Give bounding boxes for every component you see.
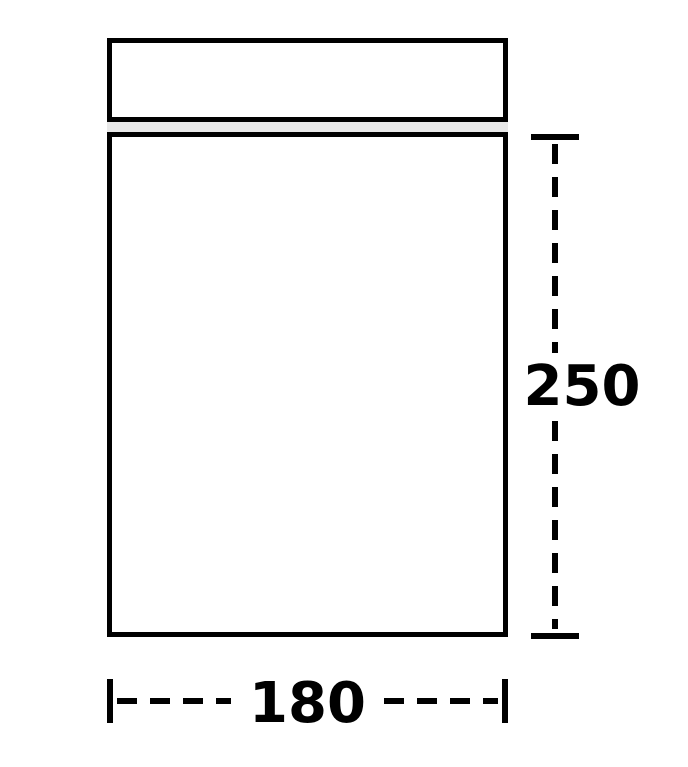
dimension-cap-top xyxy=(531,134,579,140)
dashed-line-upper xyxy=(552,144,558,353)
height-dimension: 250 xyxy=(531,134,579,639)
height-value-label: 250 xyxy=(524,359,641,415)
dimension-diagram: 250 180 xyxy=(0,0,688,767)
dimension-cap-bottom xyxy=(531,633,579,639)
dashed-line-lower xyxy=(552,421,558,630)
dimension-tick-right xyxy=(502,679,508,723)
width-dimension: 180 xyxy=(107,678,508,724)
dashed-line-right xyxy=(384,698,498,704)
zipper-seal-strip xyxy=(107,117,508,137)
dimension-tick-left xyxy=(107,679,113,723)
dashed-line-left xyxy=(117,698,231,704)
width-value-label: 180 xyxy=(235,676,380,732)
